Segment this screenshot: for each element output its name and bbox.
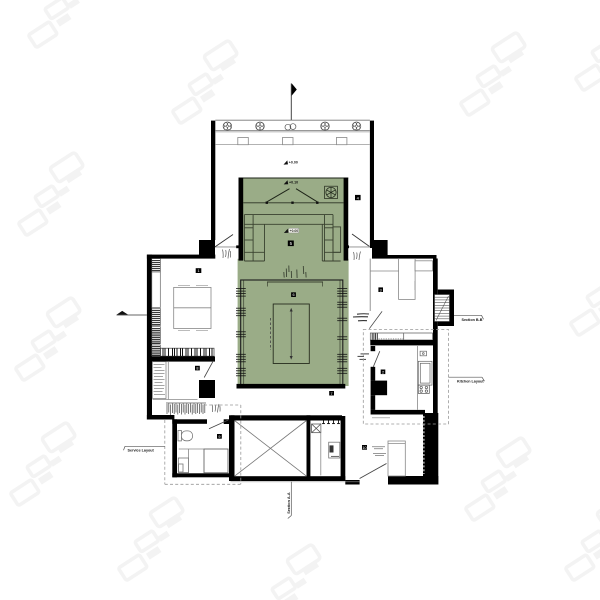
svg-text:10: 10 (362, 446, 366, 450)
svg-text:9: 9 (218, 435, 220, 439)
svg-text:2: 2 (382, 370, 384, 374)
svg-text:+0.00: +0.00 (290, 229, 299, 233)
svg-text:8: 8 (196, 367, 198, 371)
svg-text:1: 1 (197, 269, 199, 273)
svg-text:Section A-A: Section A-A (287, 492, 291, 514)
svg-text:Kitchen Layout: Kitchen Layout (457, 379, 484, 383)
svg-text:Service Layout: Service Layout (128, 448, 155, 452)
svg-text:Section B-B: Section B-B (462, 318, 483, 322)
svg-text:+0.00: +0.00 (289, 161, 298, 165)
svg-text:6: 6 (292, 293, 294, 297)
svg-text:+0.10: +0.10 (289, 180, 298, 184)
svg-text:7: 7 (331, 392, 333, 396)
svg-text:3: 3 (380, 288, 382, 292)
